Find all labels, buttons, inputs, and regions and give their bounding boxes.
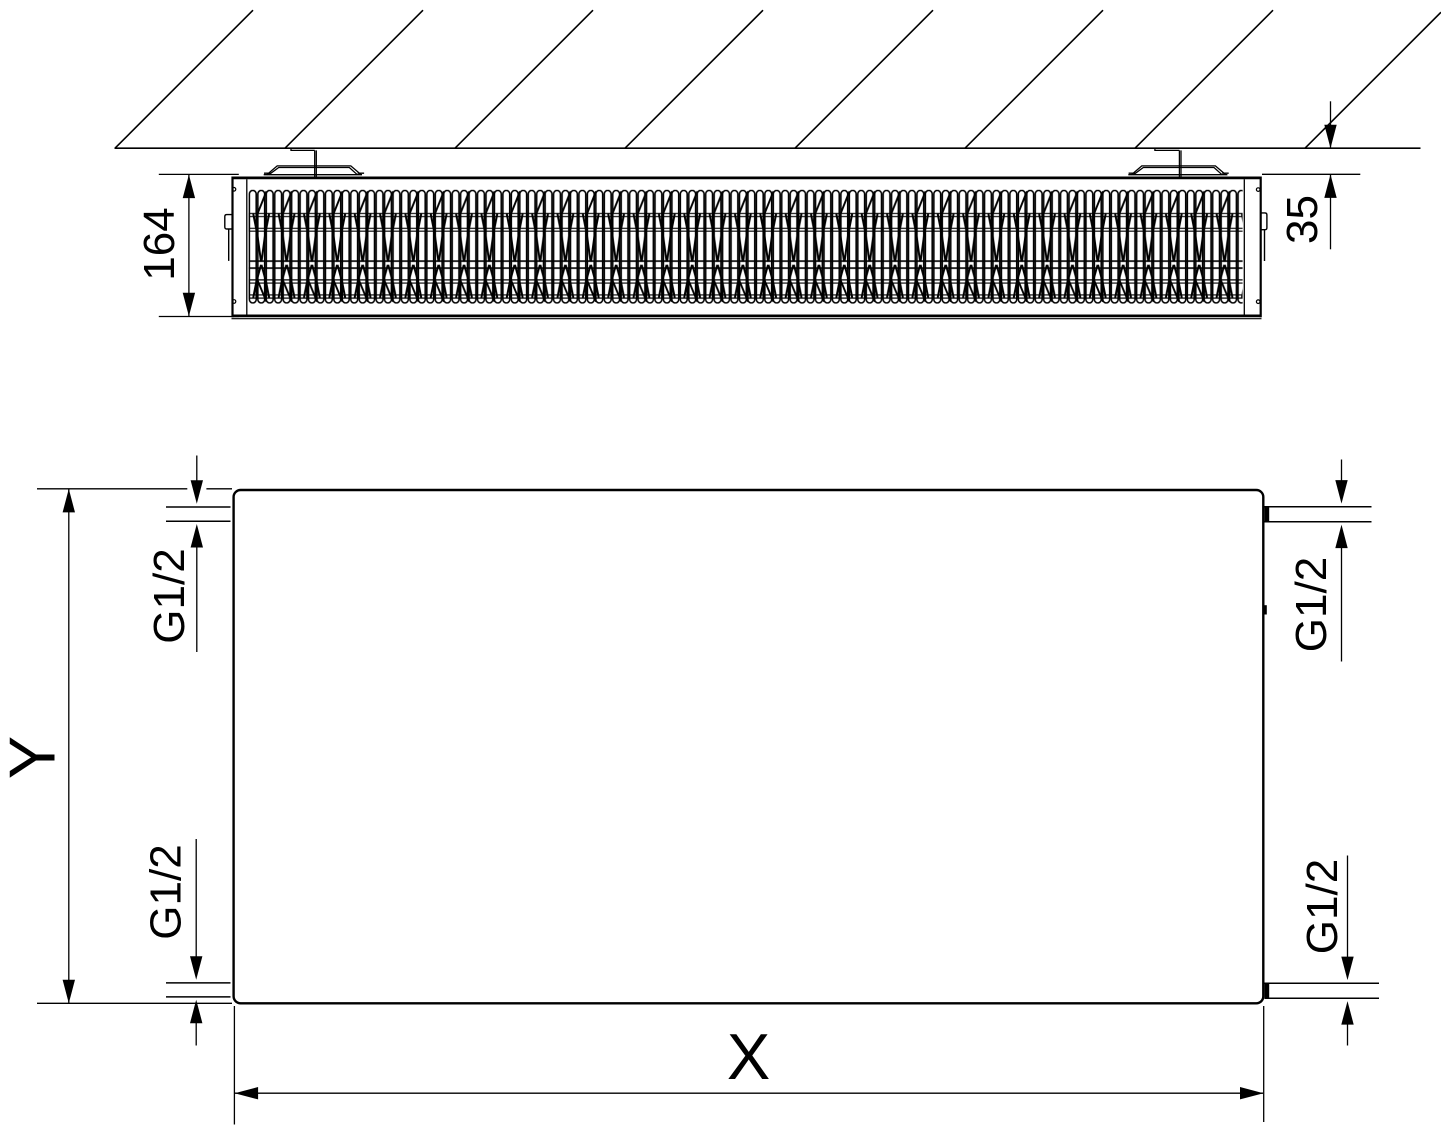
svg-text:Y: Y <box>0 736 69 779</box>
svg-text:G1/2: G1/2 <box>145 548 194 643</box>
svg-text:X: X <box>727 1020 770 1093</box>
svg-text:164: 164 <box>135 207 184 280</box>
svg-text:G1/2: G1/2 <box>142 844 191 939</box>
svg-text:G1/2: G1/2 <box>1298 859 1347 954</box>
svg-text:G1/2: G1/2 <box>1287 557 1336 652</box>
svg-text:35: 35 <box>1278 195 1327 244</box>
